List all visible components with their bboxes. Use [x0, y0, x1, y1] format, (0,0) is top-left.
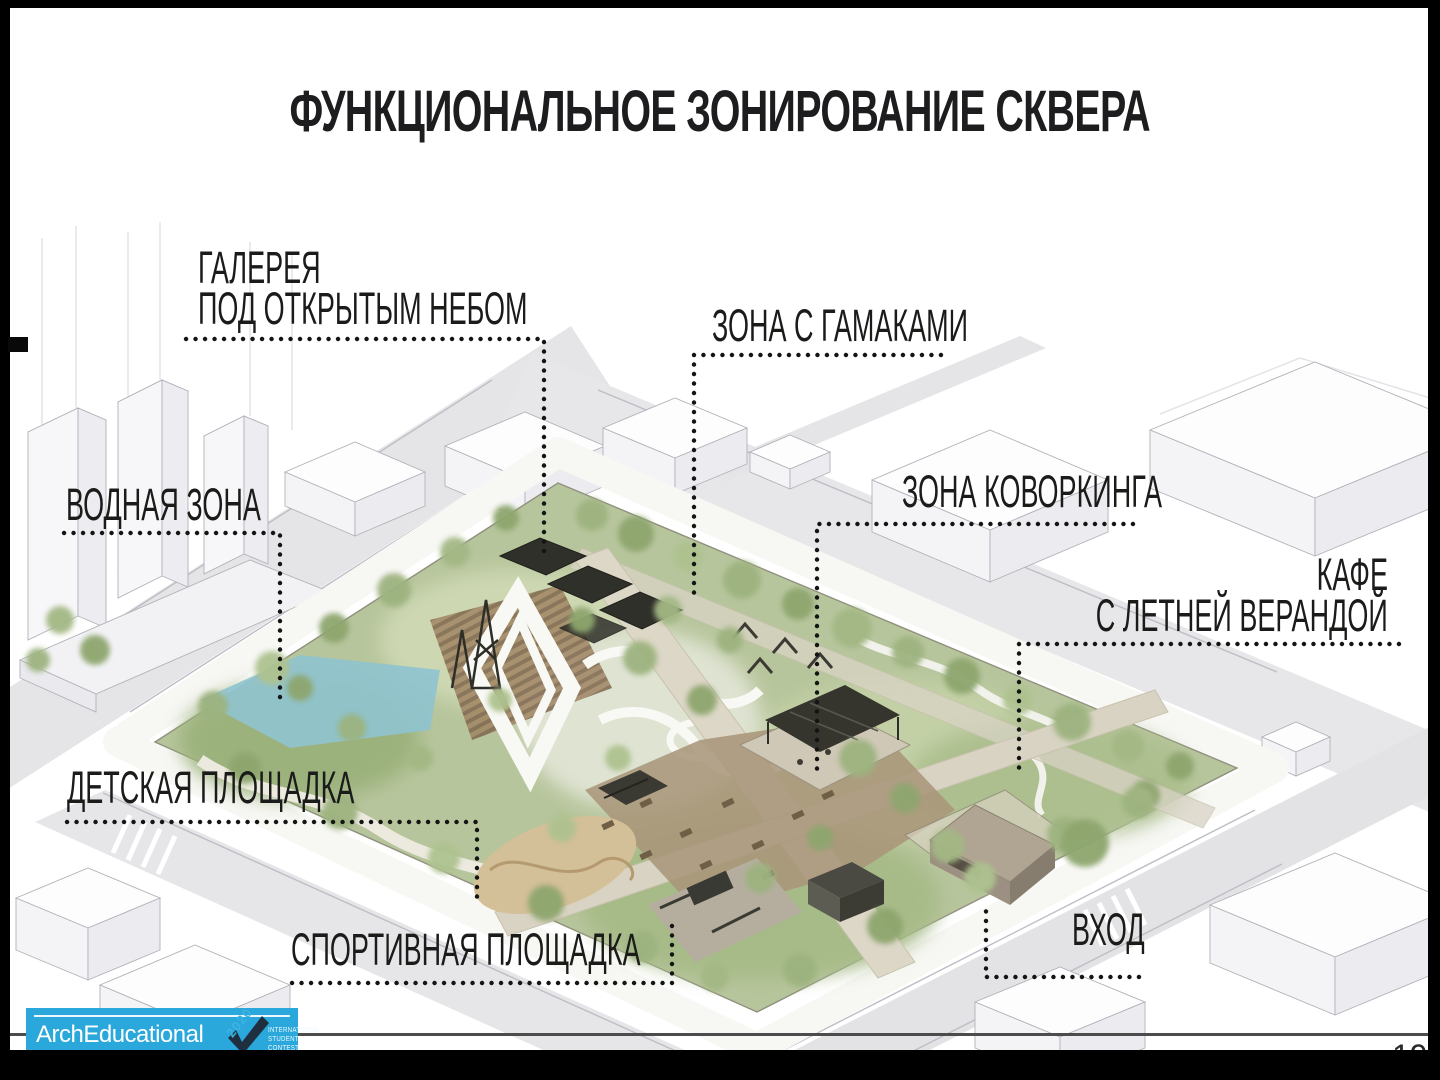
park-illustration — [0, 0, 1440, 1080]
label-playground: ДЕТСКАЯ ПЛОЩАДКА — [67, 767, 546, 808]
label-sports: СПОРТИВНАЯ ПЛОЩАДКА — [291, 929, 873, 970]
label-entrance: ВХОД — [1072, 909, 1193, 950]
label-cafe: КАФЕ С ЛЕТНЕЙ ВЕРАНДОЙ — [901, 554, 1388, 636]
label-coworking: ЗОНА КОВОРКИНГА — [902, 471, 1335, 512]
label-water-zone: ВОДНАЯ ЗОНА — [66, 484, 391, 525]
label-hammocks: ЗОНА С ГАМАКАМИ — [712, 305, 1139, 346]
logo-subtext: INTERNATIONAL STUDENT CONTEST — [268, 1025, 320, 1052]
label-cafe-line2: С ЛЕТНЕЙ ВЕРАНДОЙ — [1096, 595, 1388, 636]
label-cafe-line1: КАФЕ — [1317, 554, 1388, 595]
frame-left — [0, 0, 10, 1080]
logo-brand: ArchEducational — [36, 1021, 203, 1049]
page-title-text: ФУНКЦИОНАЛЬНОЕ ЗОНИРОВАНИЕ СКВЕРА — [290, 78, 1150, 145]
label-gallery: ГАЛЕРЕЯ ПОД ОТКРЫТЫМ НЕБОМ — [198, 247, 747, 329]
label-gallery-line2: ПОД ОТКРЫТЫМ НЕБОМ — [198, 288, 528, 329]
frame-top — [0, 0, 1440, 8]
frame-right — [1428, 0, 1440, 1080]
page-title: ФУНКЦИОНАЛЬНОЕ ЗОНИРОВАНИЕ СКВЕРА — [0, 78, 1440, 145]
frame-bottom — [0, 1050, 1440, 1080]
label-gallery-line1: ГАЛЕРЕЯ — [198, 247, 321, 288]
frame-left-notch — [8, 337, 28, 352]
